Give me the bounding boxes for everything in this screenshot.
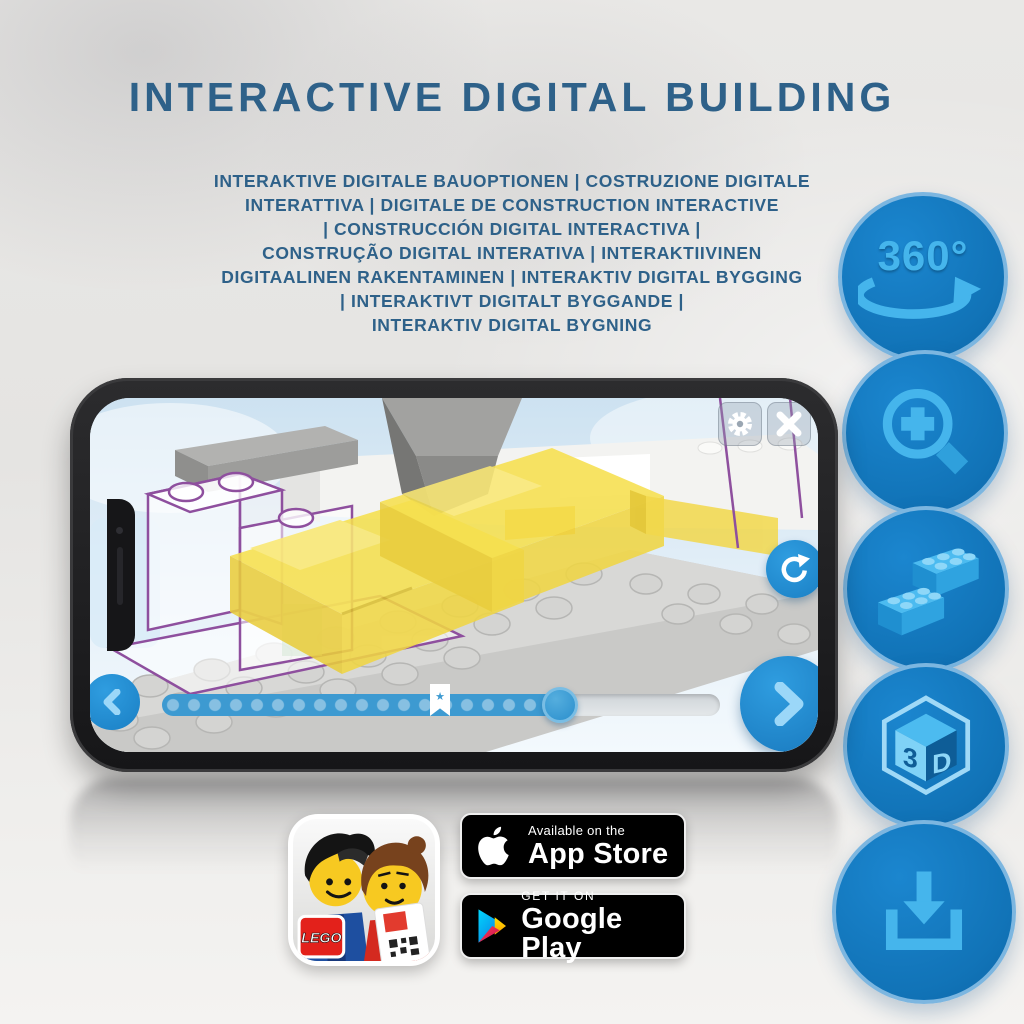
subtitle: INTERAKTIVE DIGITALE BAUOPTIONEN | COSTR… (112, 170, 912, 338)
chevron-left-icon (101, 689, 123, 715)
feature-lego-bricks (843, 506, 1009, 672)
phone-notch (107, 499, 135, 651)
app-store-title: App Store (528, 840, 668, 869)
lego-bricks-icon (867, 530, 985, 648)
lower-brick (878, 588, 944, 636)
subtitle-line: CONSTRUÇÃO DIGITAL INTERATIVA | INTERAKT… (112, 242, 912, 266)
close-button[interactable] (767, 402, 811, 446)
360-degrees-label: 360° (878, 237, 969, 275)
rotate-icon (777, 551, 813, 587)
rotate-view-button[interactable] (766, 540, 818, 598)
speaker-slit (117, 547, 123, 605)
gear-icon (725, 409, 755, 439)
lego-logo: LEGO (299, 916, 344, 957)
google-play-title: Google Play (521, 905, 670, 963)
3d-cube-icon: 3 D (867, 687, 985, 805)
app-screen: ★ (90, 398, 818, 752)
instruction-card (374, 903, 430, 961)
cube-letter-3: 3 (903, 742, 918, 775)
app-store-badge-text: Available on the App Store (528, 824, 668, 869)
subtitle-line: INTERATTIVA | DIGITALE DE CONSTRUCTION I… (112, 194, 912, 218)
download-icon (862, 850, 986, 974)
subtitle-line: INTERAKTIV DIGITAL BYGNING (112, 314, 912, 338)
google-play-badge-text: GET IT ON Google Play (521, 890, 670, 963)
google-play-icon (476, 904, 509, 948)
cube-letter-d: D (932, 746, 951, 780)
feature-3d-view: 3 D (843, 663, 1009, 829)
settings-button[interactable] (718, 402, 762, 446)
subtitle-line: DIGITAALINEN RAKENTAMINEN | INTERAKTIV D… (112, 266, 912, 290)
apple-icon (476, 822, 516, 870)
build-progress-bar[interactable]: ★ (162, 694, 720, 716)
app-icon-art: LEGO (293, 819, 435, 961)
feature-download (832, 820, 1016, 1004)
rotation-arrow-icon (858, 275, 988, 327)
progress-fill (162, 694, 558, 716)
app-store-badge[interactable]: Available on the App Store (460, 813, 686, 879)
phone-reflection (70, 778, 838, 888)
close-icon (776, 411, 802, 437)
feature-360-rotation: 360° (838, 192, 1008, 362)
google-play-badge[interactable]: GET IT ON Google Play (460, 893, 686, 959)
google-play-tagline: GET IT ON (521, 890, 670, 902)
subtitle-line: | CONSTRUCCIÓN DIGITAL INTERACTIVA | (112, 218, 912, 242)
subtitle-line: | INTERAKTIVT DIGITALT BYGGANDE | (112, 290, 912, 314)
zoom-in-icon (870, 378, 980, 488)
app-store-tagline: Available on the (528, 824, 668, 837)
marketing-page: INTERACTIVE DIGITAL BUILDING INTERAKTIVE… (0, 0, 1024, 1024)
page-title: INTERACTIVE DIGITAL BUILDING (0, 74, 1024, 121)
progress-slider-handle[interactable] (542, 687, 578, 723)
chevron-right-icon (770, 682, 806, 726)
subtitle-line: INTERAKTIVE DIGITALE BAUOPTIONEN | COSTR… (112, 170, 912, 194)
lego-app-icon[interactable]: LEGO (288, 814, 440, 966)
feature-zoom-in (842, 350, 1008, 516)
star-marker-icon: ★ (435, 690, 445, 703)
phone: ★ (70, 378, 838, 772)
camera-dot (116, 527, 123, 534)
lego-logo-text: LEGO (301, 931, 341, 947)
